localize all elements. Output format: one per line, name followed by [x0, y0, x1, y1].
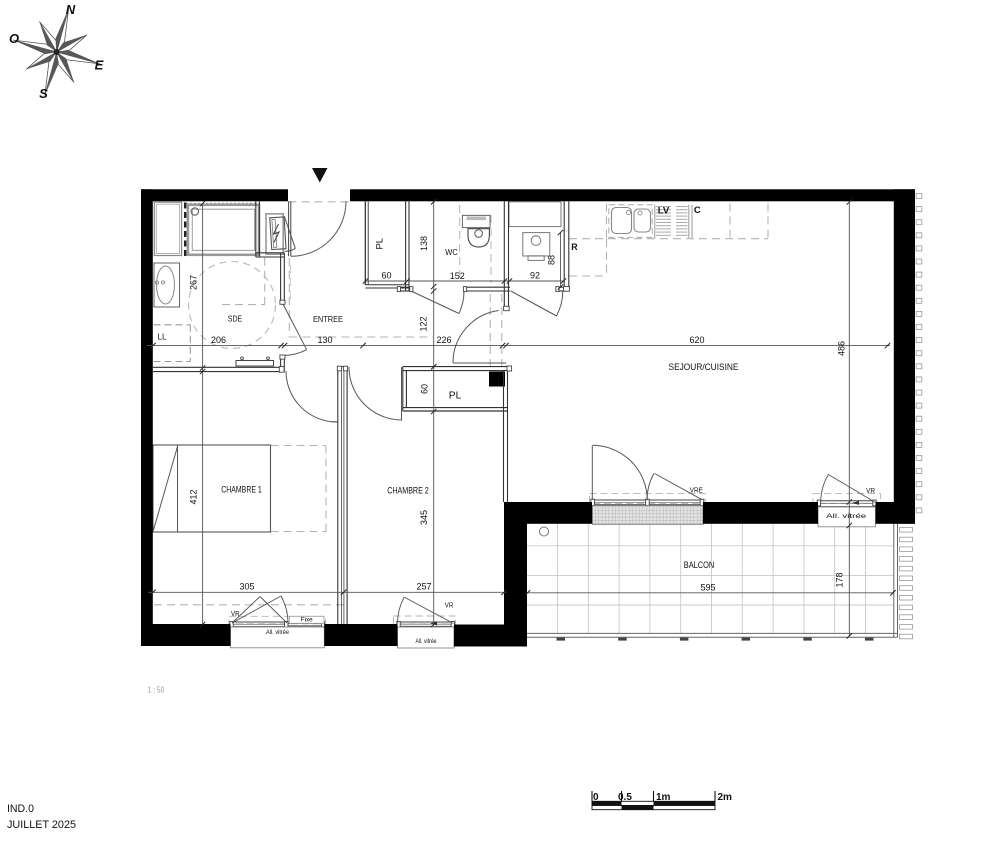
svg-text:60: 60	[381, 270, 391, 280]
svg-text:VRE: VRE	[690, 487, 703, 494]
svg-text:620: 620	[689, 335, 704, 345]
svg-text:PL: PL	[375, 238, 386, 250]
svg-text:LL: LL	[158, 331, 167, 341]
svg-text:O: O	[9, 31, 19, 46]
svg-text:267: 267	[189, 275, 199, 290]
svg-text:1 : 50: 1 : 50	[148, 686, 165, 695]
svg-text:CHAMBRE 1: CHAMBRE 1	[221, 484, 262, 494]
svg-text:206: 206	[211, 335, 226, 345]
svg-text:412: 412	[189, 489, 199, 504]
svg-text:SDE: SDE	[228, 313, 243, 323]
svg-text:All. vitrée: All. vitrée	[826, 513, 866, 520]
svg-text:Fixe: Fixe	[301, 618, 314, 624]
svg-text:138: 138	[419, 236, 429, 251]
svg-text:All. vitrée: All. vitrée	[266, 629, 289, 636]
svg-text:130: 130	[317, 335, 332, 345]
svg-text:SEJOUR/CUISINE: SEJOUR/CUISINE	[669, 362, 739, 372]
svg-text:VR: VR	[445, 603, 454, 610]
svg-text:S: S	[39, 86, 48, 101]
svg-text:0: 0	[593, 792, 599, 803]
svg-text:N: N	[66, 2, 76, 17]
svg-text:IND.0: IND.0	[7, 803, 34, 815]
svg-text:122: 122	[419, 316, 429, 331]
svg-text:VR: VR	[231, 611, 240, 618]
svg-text:486: 486	[837, 341, 847, 356]
svg-text:JUILLET 2025: JUILLET 2025	[7, 819, 76, 831]
svg-text:WC: WC	[445, 247, 458, 257]
svg-text:0.5: 0.5	[618, 792, 632, 803]
svg-text:226: 226	[436, 335, 451, 345]
svg-text:E: E	[95, 58, 104, 73]
svg-text:ENTREE: ENTREE	[313, 314, 343, 324]
svg-text:88: 88	[547, 255, 557, 265]
svg-text:2m: 2m	[718, 792, 733, 803]
svg-text:CHAMBRE 2: CHAMBRE 2	[387, 486, 429, 496]
svg-text:PL: PL	[449, 389, 462, 401]
svg-text:BALCON: BALCON	[684, 560, 715, 570]
svg-text:345: 345	[419, 510, 429, 525]
svg-text:92: 92	[530, 270, 540, 280]
svg-text:305: 305	[239, 582, 254, 592]
svg-text:All. vitrée: All. vitrée	[416, 638, 437, 645]
svg-text:1m: 1m	[656, 792, 671, 803]
svg-text:595: 595	[700, 582, 715, 592]
svg-text:LV: LV	[658, 206, 670, 217]
svg-text:178: 178	[835, 572, 845, 587]
svg-text:R: R	[571, 242, 578, 252]
svg-text:C: C	[694, 205, 701, 216]
svg-text:257: 257	[416, 582, 431, 592]
svg-text:VR: VR	[866, 488, 875, 495]
svg-text:152: 152	[450, 271, 465, 281]
svg-text:60: 60	[420, 384, 430, 394]
